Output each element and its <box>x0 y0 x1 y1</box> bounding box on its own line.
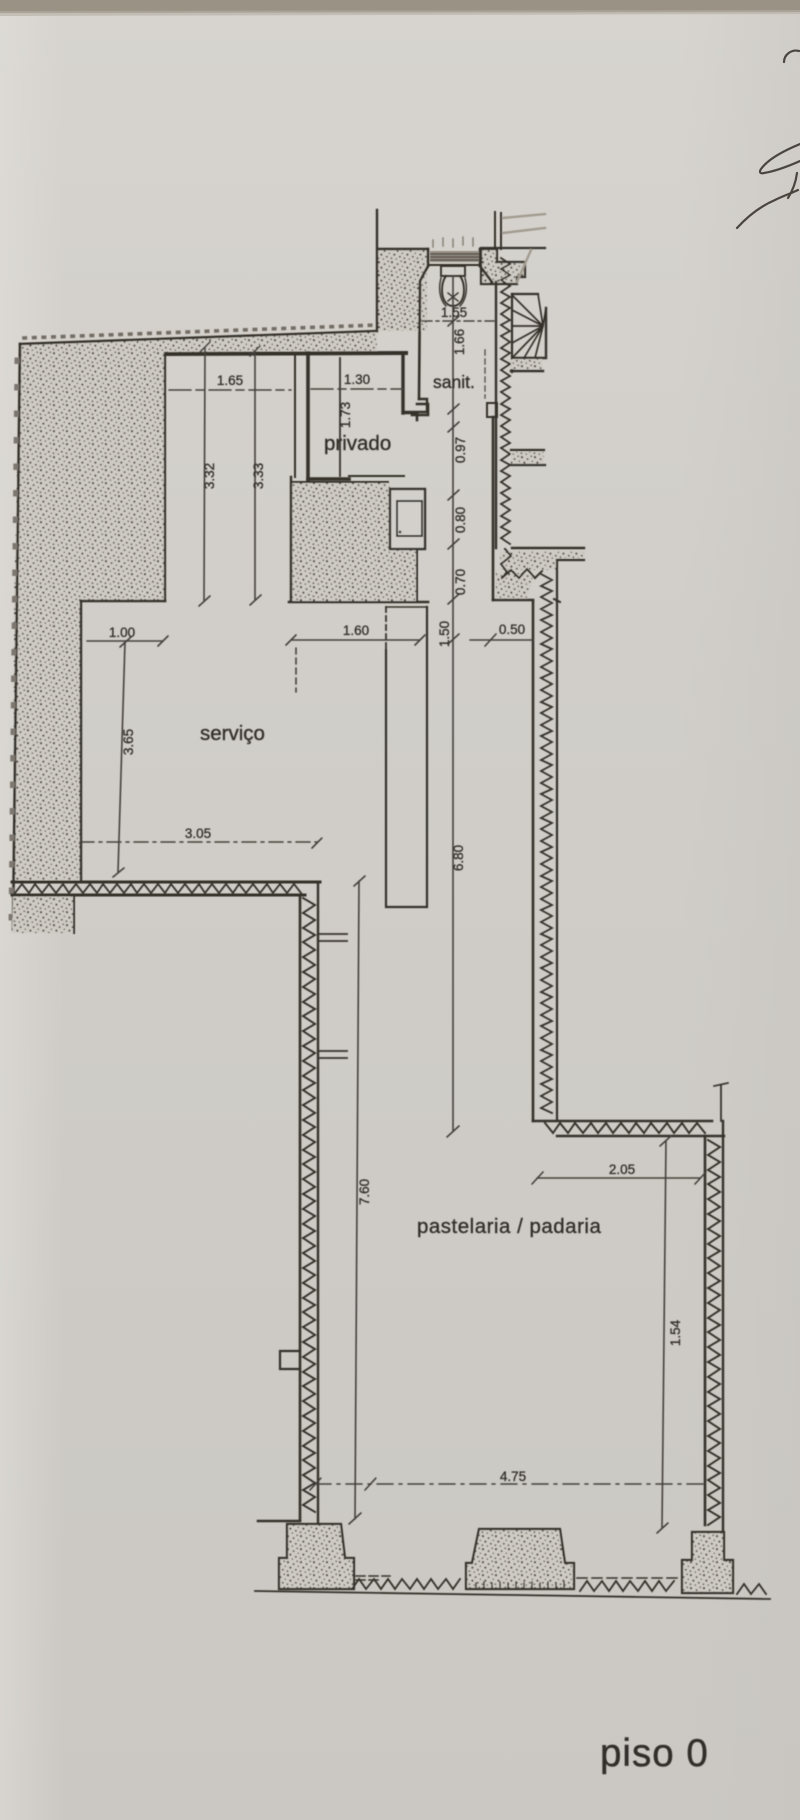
svg-text:1.00: 1.00 <box>109 625 135 640</box>
svg-text:0.50: 0.50 <box>499 622 525 637</box>
svg-text:1.54: 1.54 <box>668 1319 683 1346</box>
svg-text:4.75: 4.75 <box>500 1469 526 1484</box>
svg-text:1.60: 1.60 <box>343 623 369 638</box>
svg-text:6.80: 6.80 <box>451 845 466 871</box>
svg-text:1.66: 1.66 <box>452 329 467 355</box>
svg-text:0.97: 0.97 <box>453 437 468 463</box>
svg-text:1.30: 1.30 <box>344 372 370 387</box>
svg-text:sanit.: sanit. <box>433 372 475 392</box>
svg-text:privado: privado <box>324 432 391 455</box>
svg-text:3.05: 3.05 <box>185 826 211 841</box>
svg-text:0.70: 0.70 <box>453 569 468 595</box>
svg-text:1.50: 1.50 <box>437 621 452 647</box>
svg-text:piso 0: piso 0 <box>600 1732 709 1775</box>
svg-text:1.73: 1.73 <box>338 402 353 428</box>
svg-text:1.55: 1.55 <box>441 305 467 320</box>
svg-text:7.60: 7.60 <box>357 1179 372 1205</box>
svg-text:0.80: 0.80 <box>453 507 468 533</box>
svg-text:2.05: 2.05 <box>609 1162 635 1177</box>
svg-text:serviço: serviço <box>200 722 265 745</box>
svg-text:1.65: 1.65 <box>217 373 243 388</box>
svg-text:3.65: 3.65 <box>121 729 136 755</box>
svg-text:pastelaria / padaria: pastelaria / padaria <box>417 1215 601 1238</box>
svg-text:3.33: 3.33 <box>251 463 266 489</box>
svg-text:3.32: 3.32 <box>202 463 217 489</box>
